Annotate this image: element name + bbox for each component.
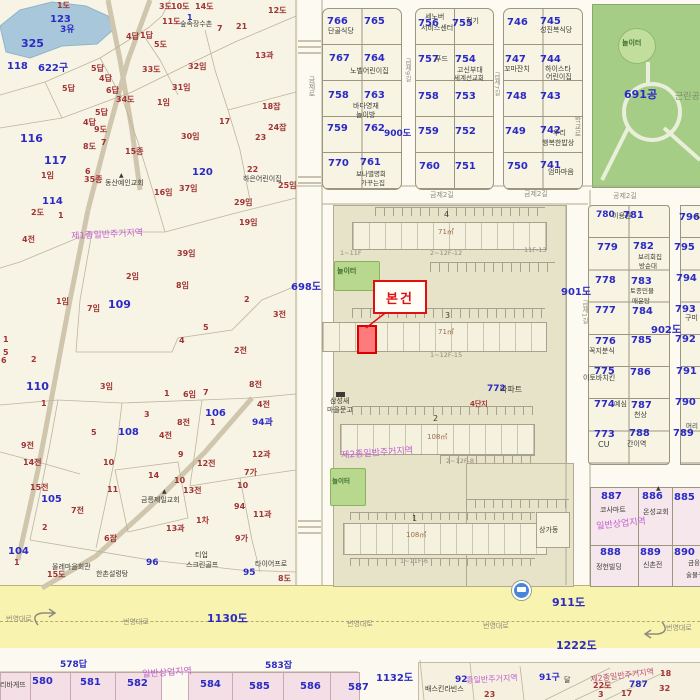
parking-row	[352, 406, 533, 415]
lot-block-746	[503, 8, 583, 190]
lot-block-779	[588, 205, 670, 465]
lot-block-766	[322, 8, 402, 190]
playground-area	[330, 468, 366, 506]
parking-row	[375, 207, 545, 216]
crosswalk	[298, 520, 321, 534]
park-paths	[602, 62, 700, 180]
subject-callout: 본건	[373, 280, 427, 314]
bus-stop-icon	[512, 581, 531, 600]
lot-block-795	[680, 205, 700, 465]
crosswalk	[298, 40, 321, 54]
parking-row	[350, 512, 535, 520]
lot-block-756	[415, 8, 494, 190]
subject-parcel-highlight	[357, 325, 377, 354]
parking-row	[466, 499, 569, 508]
water-body	[0, 2, 113, 58]
apartment-building-1	[343, 523, 547, 555]
lot-block-887	[590, 487, 700, 587]
apartment-building-3	[322, 322, 547, 352]
parking-row	[350, 558, 535, 566]
parking-row	[440, 455, 535, 464]
subject-label: 본건	[386, 288, 414, 307]
left-local-roads	[18, 0, 252, 588]
shopping-building	[536, 512, 570, 548]
library-icon	[336, 392, 345, 397]
crosswalk	[298, 176, 321, 188]
cadastral-map[interactable]: 본건 1도1233유325118622구5답4답5답6답34도5답4답9도78도…	[0, 0, 700, 700]
apartment-building-2	[340, 424, 535, 455]
parking-row	[430, 262, 555, 272]
apartment-building-4	[352, 222, 547, 250]
